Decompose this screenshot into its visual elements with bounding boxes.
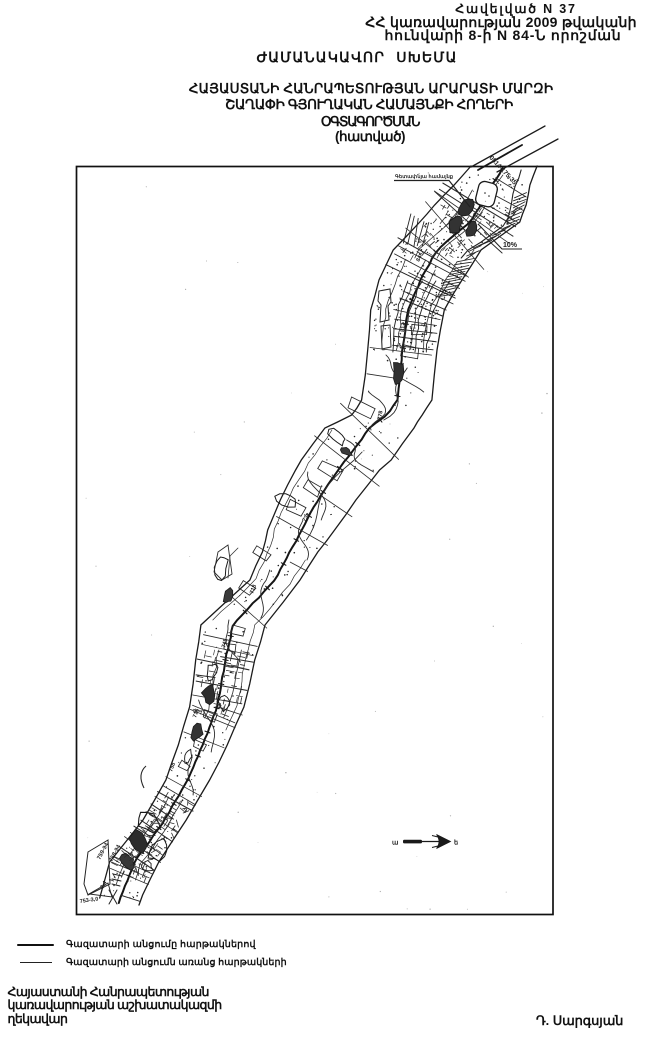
- svg-text:10%: 10%: [503, 242, 518, 249]
- svg-text:812: 812: [400, 322, 407, 332]
- svg-text:0,4: 0,4: [100, 880, 109, 890]
- svg-text:718: 718: [249, 584, 258, 595]
- svg-text:ա: ա: [392, 840, 399, 847]
- svg-text:753-3,0: 753-3,0: [79, 896, 98, 905]
- svg-text:778: 778: [377, 410, 385, 420]
- svg-text:Գետափնյա համայնք: Գետափնյա համայնք: [395, 173, 454, 180]
- svg-text:758: 758: [168, 762, 177, 773]
- svg-text:ե: ե: [454, 839, 458, 847]
- svg-text:0514-175-35: 0514-175-35: [488, 155, 519, 187]
